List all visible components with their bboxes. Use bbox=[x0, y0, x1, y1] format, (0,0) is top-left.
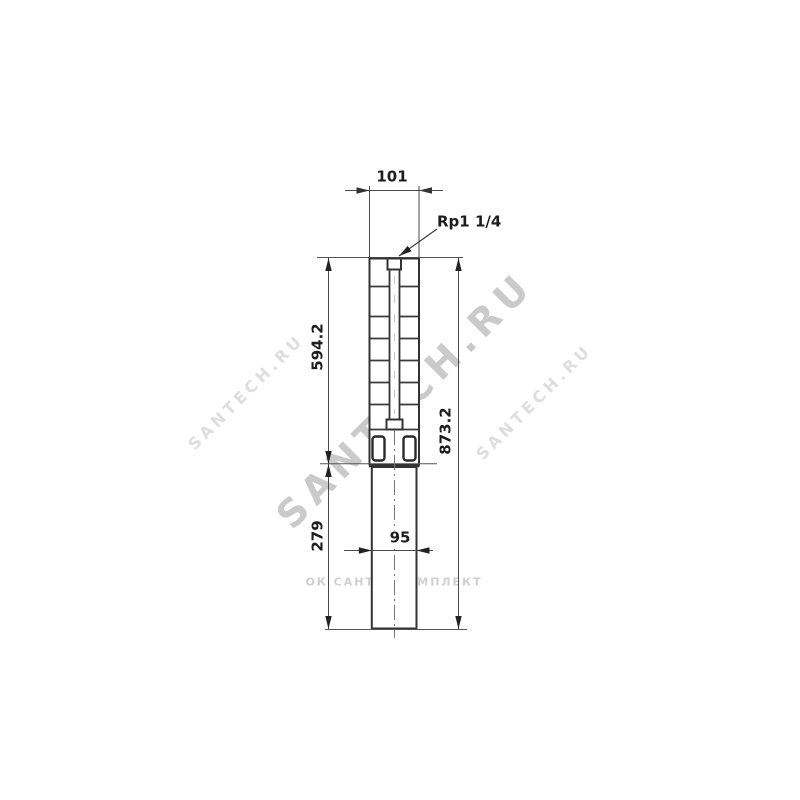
dimension-594-279 bbox=[325, 258, 331, 629]
dim-label-top-width: 101 bbox=[376, 170, 407, 185]
channel-bottom-cap bbox=[387, 420, 403, 430]
drawing-linework bbox=[0, 0, 800, 800]
dim-label-total-length: 873.2 bbox=[439, 407, 454, 454]
pump-dimension-drawing: SANTECH.RU SANTECH.RU SANTECH.RU ОК САНТ… bbox=[0, 0, 800, 800]
riser-channel bbox=[387, 259, 403, 430]
leader-rp1-1-4 bbox=[399, 229, 437, 256]
interface-lines bbox=[320, 464, 437, 466]
dimension-873 bbox=[455, 258, 461, 629]
discharge-port bbox=[388, 259, 402, 270]
dim-label-motor-width: 95 bbox=[388, 531, 413, 546]
dim-label-motor-length: 279 bbox=[311, 520, 326, 551]
dimension-101 bbox=[345, 186, 443, 257]
dim-label-pump-length: 594.2 bbox=[311, 323, 326, 370]
dim-label-connection-thread: Rp1 1/4 bbox=[437, 215, 501, 230]
